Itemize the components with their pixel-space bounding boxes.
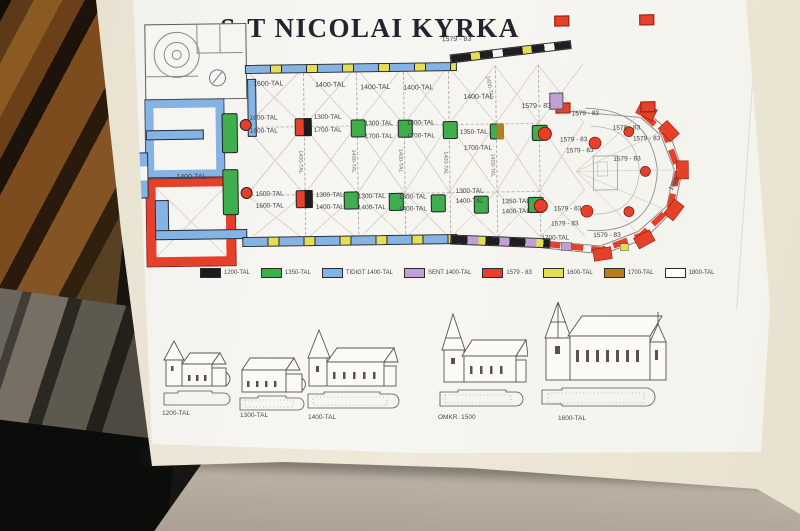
legend-item: SENT 1400-TAL xyxy=(404,268,471,278)
legend-item: 1600-TAL xyxy=(543,268,593,278)
legend-label: TIDIGT 1400-TAL xyxy=(346,270,393,276)
plan-label: 1579 - 83 xyxy=(554,206,582,213)
plan-label: 1400-TAL xyxy=(176,174,206,181)
church-drawing-1500: OMKR. 1500 xyxy=(432,312,528,419)
plan-label: 1300-TAL xyxy=(407,120,435,127)
pier-phase xyxy=(304,190,313,208)
plan-label: 1579 - 83 xyxy=(551,221,579,228)
vault-bay xyxy=(356,67,404,126)
floor-plan: 1579 - 83 xyxy=(144,16,771,277)
legend-swatch xyxy=(404,268,425,278)
plan-label: 1300-TAL xyxy=(316,193,344,200)
legend-label: 1700-TAL xyxy=(628,270,654,276)
legend-label: 1800-TAL xyxy=(689,270,715,276)
pier xyxy=(222,113,239,153)
legend-item: TIDIGT 1400-TAL xyxy=(322,268,393,278)
tower-opening xyxy=(597,98,610,107)
plan-label: 1600-TAL xyxy=(250,116,278,123)
pier xyxy=(295,118,312,136)
plan-label: 1300-TAL xyxy=(358,194,386,201)
plan-label: 1579 - 83 xyxy=(566,148,594,155)
plan-label: 1700-TAL xyxy=(464,146,492,153)
legend-item: 1350-TAL xyxy=(261,268,311,278)
plan-label: 1300-TAL xyxy=(314,115,342,122)
plan-label: 1400-TAL xyxy=(397,149,403,173)
plan-label: 1700-TAL xyxy=(541,235,569,242)
plan-label: 1350-TAL xyxy=(502,199,530,206)
legend-label: 1600-TAL xyxy=(567,270,593,276)
plan-label: 1600-TAL xyxy=(250,129,278,136)
legend: 1200-TAL1350-TALTIDIGT 1400-TALSENT 1400… xyxy=(200,268,715,278)
church-label: 1300-TAL xyxy=(240,412,268,419)
plan-label: 1600-TAL xyxy=(253,80,283,87)
plan-label: 1579 - 83 xyxy=(572,111,600,118)
vault-bay xyxy=(403,66,449,125)
pier xyxy=(532,125,548,141)
legend-label: 1350-TAL xyxy=(285,270,311,276)
legend-swatch xyxy=(322,268,343,278)
plan-label: 1400-TAL xyxy=(316,205,344,212)
pier xyxy=(431,194,446,212)
legend-swatch xyxy=(665,268,686,278)
legend-swatch xyxy=(604,268,625,278)
church-drawing-1200: 1200-TAL xyxy=(158,332,238,415)
plan-label: 1300-TAL xyxy=(456,189,484,196)
legend-label: 1579 - 83 xyxy=(506,270,531,276)
plan-label: 1400-TAL xyxy=(360,84,390,91)
plan-label: 1700-TAL xyxy=(407,133,435,140)
plan-label: 1700-TAL xyxy=(365,134,393,141)
plan-label: 1600-TAL xyxy=(256,203,284,210)
plan-label: 1579 - 83 xyxy=(633,136,661,143)
photo-scene: S:T NICOLAI KYRKA xyxy=(0,0,800,531)
church-label: 1600-TAL xyxy=(558,415,586,422)
church-drawing-1400: 1400-TAL xyxy=(300,326,404,419)
plan-label: 1579 - 83 xyxy=(560,137,588,144)
tower-opening xyxy=(559,52,568,65)
legend-label: 1200-TAL xyxy=(224,270,250,276)
plan-label: 1400-TAL xyxy=(489,153,495,177)
plan-label: 1400-TAL xyxy=(399,206,427,213)
legend-item: 1800-TAL xyxy=(665,268,715,278)
plan-label: 1400-TAL xyxy=(442,151,448,175)
church-label: OMKR. 1500 xyxy=(438,414,476,421)
annex-south-wall xyxy=(146,130,204,141)
church-drawing-1600: 1600-TAL xyxy=(530,302,682,421)
legend-swatch xyxy=(200,268,221,278)
pier-phase xyxy=(303,118,312,136)
tower-buttress xyxy=(640,101,655,112)
plan-label: 1600-TAL xyxy=(256,191,284,198)
church-label: 1200-TAL xyxy=(162,410,190,417)
legend-label: SENT 1400-TAL xyxy=(428,270,471,276)
pier xyxy=(296,190,313,208)
pier-phase xyxy=(497,123,504,139)
plan-label: 1350-TAL xyxy=(460,130,488,137)
annex-wall xyxy=(219,23,220,52)
plan-label: 1400-TAL xyxy=(315,82,345,89)
north-wall-old xyxy=(450,40,572,63)
south-wall xyxy=(242,234,457,247)
tower-buttress xyxy=(554,15,569,26)
plan-label: 1700-TAL xyxy=(314,128,342,135)
southwest-wall xyxy=(155,229,247,240)
plan-label: 1579 - 83 xyxy=(613,125,641,132)
church-label: 1400-TAL xyxy=(308,414,336,421)
pier xyxy=(241,187,253,199)
plan-label: 1400-TAL xyxy=(350,149,356,173)
pier xyxy=(344,191,359,209)
plan-label: 1400-TAL xyxy=(403,84,433,91)
pier xyxy=(222,169,239,215)
tower-ring xyxy=(172,50,182,60)
plan-label: 1400-TAL xyxy=(297,150,303,174)
legend-item: 1200-TAL xyxy=(200,268,250,278)
plan-label: 1300-TAL xyxy=(365,121,393,128)
plan-label: 1300-TAL xyxy=(399,194,427,201)
pier xyxy=(443,121,458,139)
legend-item: 1579 - 83 xyxy=(482,268,531,278)
plan-label: 1579 - 83 xyxy=(521,103,551,110)
legend-swatch xyxy=(482,268,503,278)
spiral-stair xyxy=(209,69,226,86)
pier-phase xyxy=(534,199,548,213)
legend-swatch xyxy=(543,268,564,278)
plan-label: 1400-TAL xyxy=(502,209,530,216)
evolution-drawings: 1200-TAL 1300-TAL xyxy=(150,300,720,448)
tower-buttress xyxy=(639,14,654,25)
plan-label: 1579 - 83 xyxy=(613,156,641,163)
plan-label: 1579 - 83 xyxy=(593,233,621,240)
plan-label: 1400-TAL xyxy=(456,199,484,206)
pier xyxy=(528,197,544,213)
legend-item: 1700-TAL xyxy=(604,268,654,278)
pier xyxy=(351,119,366,137)
plan-label: 1400-TAL xyxy=(358,205,386,212)
legend-swatch xyxy=(261,268,282,278)
pier xyxy=(490,123,504,139)
